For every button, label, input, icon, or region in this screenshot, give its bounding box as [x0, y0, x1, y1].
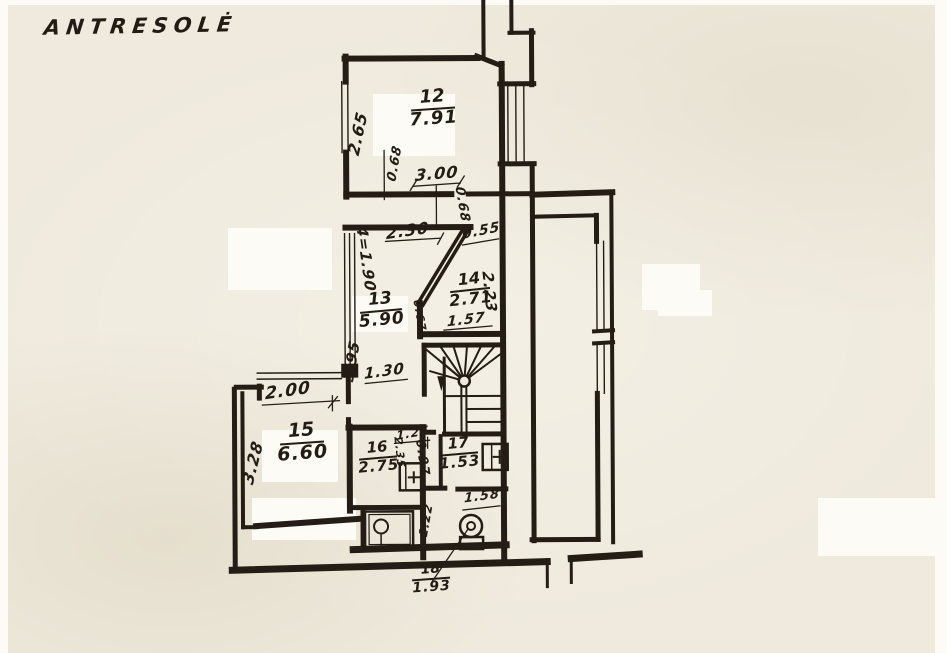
floor-plan-page: ANTRESOLĖ 12 7.91 13 5.90 14 2.71 15 6.6…: [0, 0, 947, 653]
room-label-15: 15 6.60: [269, 419, 336, 466]
room-label-13: 13 5.90: [350, 289, 411, 333]
dim-room12-bottom: 3.00: [414, 162, 459, 185]
stair-newel-circle: [459, 376, 470, 387]
room-label-12: 12 7.91: [401, 86, 466, 131]
room-label-18: 18 1.93: [407, 560, 455, 596]
plan-title: ANTRESOLĖ: [43, 12, 239, 39]
staircase: [424, 345, 503, 431]
room-18-area: 1.93: [408, 578, 455, 596]
room-label-17: 17 1.53: [433, 434, 486, 473]
shower-tray-icon: [365, 511, 413, 547]
